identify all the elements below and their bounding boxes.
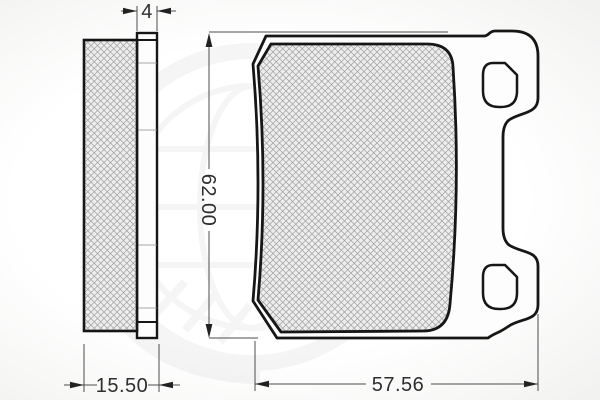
arrow-right-icon	[524, 381, 538, 387]
dimension-label-thickness: 4	[141, 1, 153, 23]
side-view-backplate	[137, 33, 157, 338]
front-view-hole-top	[483, 63, 517, 107]
side-view-friction-material	[84, 40, 137, 331]
dimension-label-total-thickness: 15.50	[96, 375, 149, 397]
front-view-friction-pad	[258, 44, 456, 332]
arrow-down-icon	[206, 324, 213, 338]
arrow-right-icon	[70, 382, 84, 388]
diagram-canvas: 4 62.00 15.50 57.5	[0, 0, 600, 400]
arrow-left-icon	[157, 8, 171, 14]
dimension-backplate-thickness: 4	[121, 1, 176, 31]
arrow-left-icon	[159, 382, 173, 388]
side-view	[84, 33, 157, 338]
arrow-up-icon	[206, 33, 213, 47]
dimension-label-height: 62.00	[197, 174, 219, 227]
front-view-hole-bottom	[483, 265, 517, 309]
drawing-sheet: 4 62.00 15.50 57.5	[0, 0, 600, 400]
front-view	[253, 31, 538, 338]
arrow-right-icon	[123, 8, 137, 14]
dimension-label-width: 57.56	[372, 374, 425, 396]
